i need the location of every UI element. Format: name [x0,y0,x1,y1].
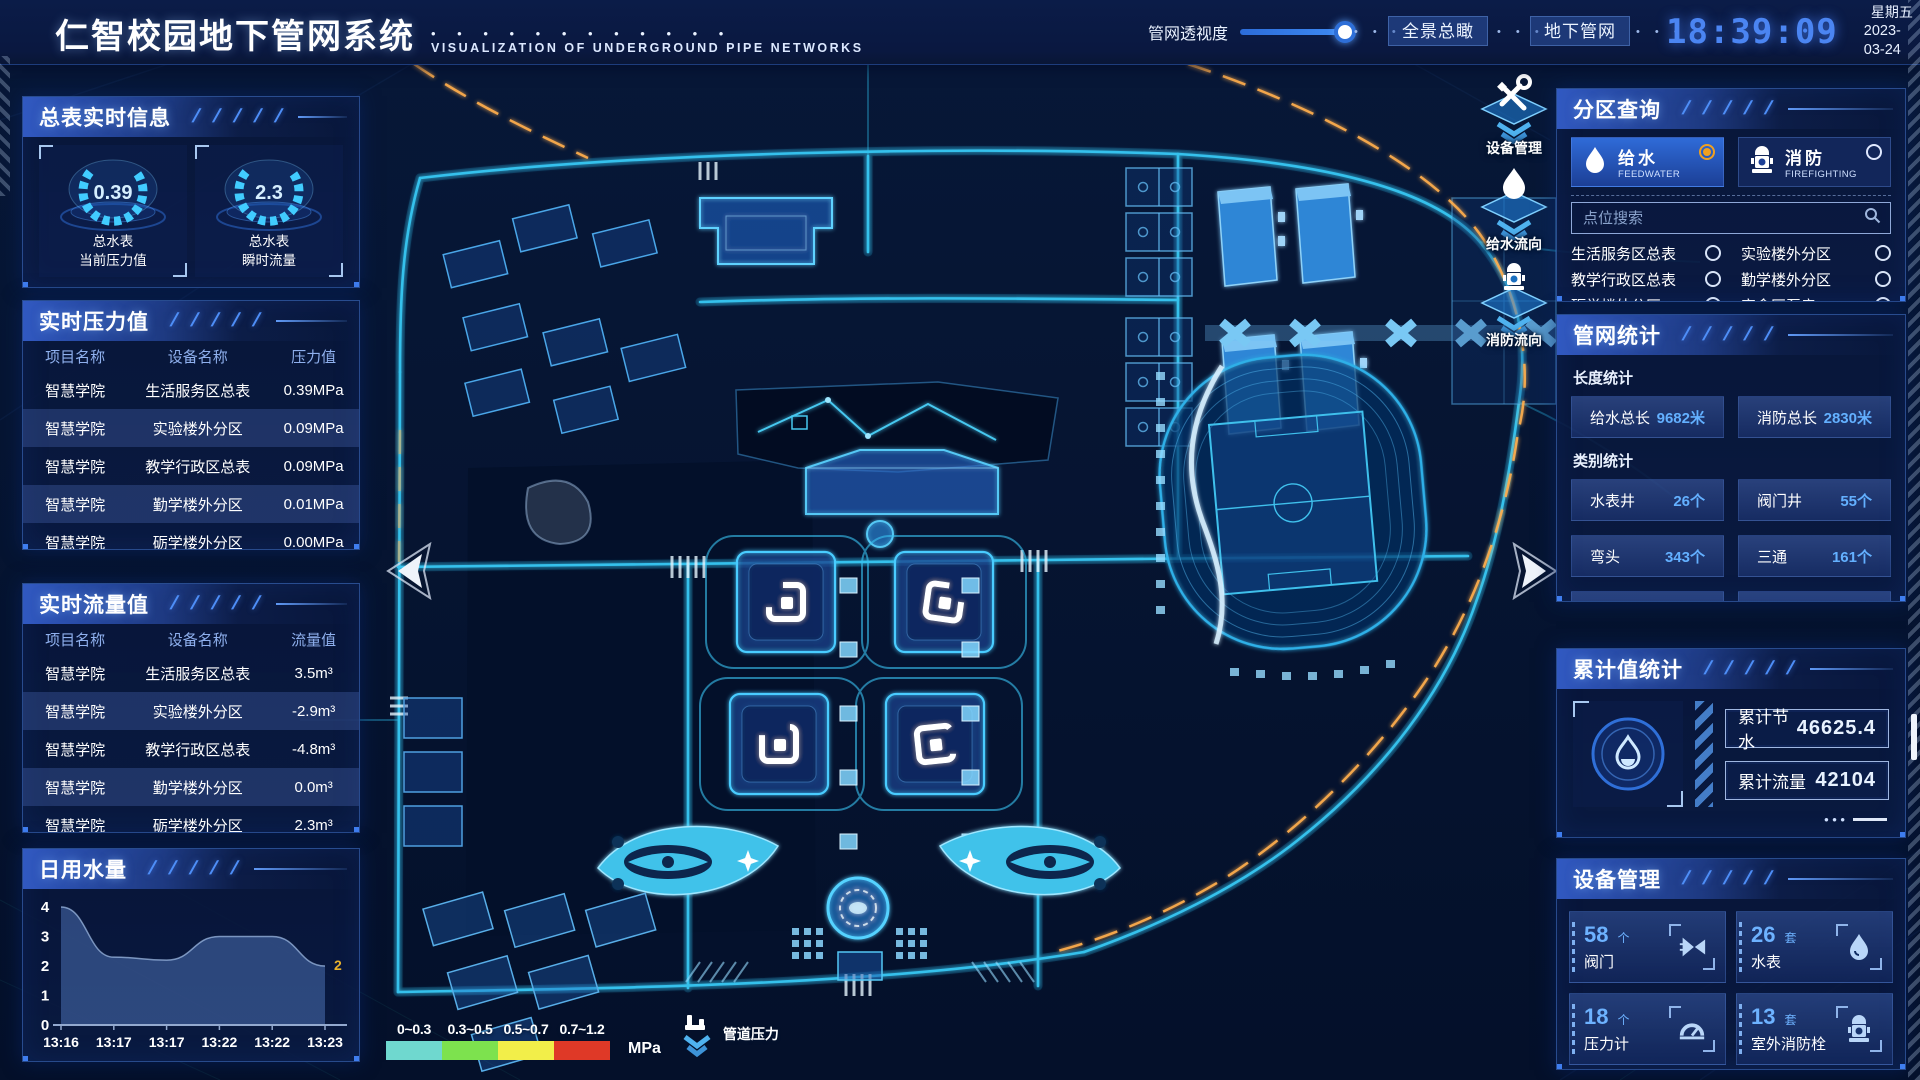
panel-title: 总表实时信息 [39,102,171,132]
table-row: 智慧学院生活服务区总表3.5m³ [23,654,359,692]
stat-box-clipped [1571,591,1724,602]
map-pan-left-arrow[interactable] [374,540,438,607]
gauge-label: 总水表 瞬时流量 [242,233,296,271]
svg-text:13:23: 13:23 [307,1034,343,1050]
title-dots-deco: • • • • • • • • • • • • [431,27,864,41]
table-header: 项目名称设备名称压力值 [23,341,359,371]
svg-text:2: 2 [334,957,342,973]
pressure-gauge-icon [1669,1006,1715,1052]
radio-indicator [1875,271,1891,287]
radio-indicator [1705,297,1721,302]
chevron-left-icon [374,540,438,602]
daily-water-area-chart: 0123413:1613:1713:1713:2213:2213:232 [27,893,351,1055]
valve-icon [1669,924,1715,970]
svg-text:3: 3 [41,929,49,946]
pipe-pressure-legend: 0~0.3 0.3~0.5 0.5~0.7 0.7~1.2 MPa 管道压力 [386,1011,779,1060]
header-slashes-deco: / / / / / [1681,98,1777,120]
slider-thumb[interactable] [1334,21,1356,43]
header-line-deco [276,603,347,605]
cumulative-row: 累计节水46625.4 [1725,709,1889,748]
header-slashes-deco: / / / / / [147,858,243,880]
app-title: 仁智校园地下管网系统 [55,9,415,58]
realtime-flow-panel: 实时流量值/ / / / / 项目名称设备名称流量值 智慧学院生活服务区总表3.… [22,583,360,833]
svg-text:13:22: 13:22 [254,1034,290,1050]
underground-pipe-button[interactable]: 地下管网 [1530,16,1630,46]
app-subtitle: VISUALIZATION OF UNDERGROUND PIPE NETWOR… [431,41,864,55]
stat-box-clipped [1738,591,1891,602]
daily-water-panel: 日用水量/ / / / / 0123413:1613:1713:1713:221… [22,848,360,1062]
zone-list-item[interactable]: 勤学楼外分区 [1741,266,1891,292]
svg-text:13:17: 13:17 [149,1034,185,1050]
header-slashes-deco: / / / / / [169,310,265,332]
pipe-statistics-panel: 管网统计/ / / / / 长度统计 给水总长9682米 消防总长2830米 类… [1556,314,1906,602]
stripes-divider-deco [1695,701,1713,807]
library-building [700,198,832,264]
header-line-deco [1788,334,1893,336]
water-drop-icon [1582,145,1608,180]
radio-indicator [1875,245,1891,261]
header-line-deco [276,320,347,322]
valve-device-card[interactable]: 58个 阀门 [1569,911,1726,983]
legend-swatch [386,1041,442,1060]
svg-text:1: 1 [41,988,49,1005]
wrench-tools-icon [1478,66,1550,144]
panel-footer-deco: • • • [1557,807,1905,827]
radio-indicator [1866,144,1882,160]
length-stats-subtitle: 长度统计 [1557,355,1905,396]
master-meter-panel: 总表实时信息 / / / / / 0.39 总水表 当前压力值 [22,96,360,288]
table-header: 项目名称设备名称流量值 [23,624,359,654]
search-input[interactable] [1581,209,1864,228]
svg-text:2.3: 2.3 [255,182,283,204]
gauge-dial-icon: 2.3 [209,145,329,237]
pipe-pressure-gauge-icon[interactable] [677,1011,717,1068]
table-row: 智慧学院砺学楼外分区0.00MPa [23,523,359,550]
device-management-map-button[interactable]: 设备管理 [1478,66,1550,158]
svg-text:13:17: 13:17 [96,1034,132,1050]
search-box [1571,202,1891,234]
west-blocks [404,698,462,846]
panel-title: 实时压力值 [39,306,149,336]
legend-swatch [498,1041,554,1060]
pipe-transparency-slider-group: 管网透视度 [1148,0,1352,64]
svg-text:13:16: 13:16 [43,1034,79,1050]
feedwater-mode-button[interactable]: 给水FEEDWATER [1571,137,1724,187]
legend-label: 管道压力 [723,1024,779,1044]
panel-title: 设备管理 [1573,864,1661,894]
water-drop-icon [1478,162,1550,240]
legend-swatch [442,1041,498,1060]
water-drop-circle-icon [1589,715,1667,793]
table-row: 智慧学院砺学楼外分区2.3m³ [23,806,359,833]
table-row: 智慧学院实验楼外分区0.09MPa [23,409,359,447]
legend-unit: MPa [628,1040,661,1058]
right-edge-stripes-deco [1908,0,1920,1080]
zone-list-item[interactable]: 宿舍区泵房 [1741,292,1891,302]
radio-indicator [1699,144,1715,160]
header-line-deco [254,868,347,870]
central-fountain [828,878,888,938]
header-line-deco [298,116,347,118]
svg-text:2: 2 [41,958,49,975]
stat-box: 三通161个 [1738,535,1891,577]
stat-box: 弯头343个 [1571,535,1724,577]
svg-text:0: 0 [41,1017,49,1034]
outdoor-hydrant-device-card[interactable]: 13套 室外消防栓 [1736,993,1893,1065]
table-row: 智慧学院勤学楼外分区0.0m³ [23,768,359,806]
pressure-gauge-device-card[interactable]: 18个 压力计 [1569,993,1726,1065]
stat-box: 水表井26个 [1571,479,1724,521]
flow-gauge-card: 2.3 总水表 瞬时流量 [195,145,343,277]
panel-title: 累计值统计 [1573,654,1683,684]
header-slashes-deco: / / / / / [1681,868,1777,890]
svg-text:13:22: 13:22 [201,1034,237,1050]
table-row: 智慧学院实验楼外分区-2.9m³ [23,692,359,730]
water-saving-icon-box [1573,701,1683,807]
realtime-pressure-panel: 实时压力值/ / / / / 项目名称设备名称压力值 智慧学院生活服务区总表0.… [22,300,360,550]
zone-list-item[interactable]: 实验楼外分区 [1741,240,1891,266]
map-tool-stack: 设备管理 给水流向 消防流向 [1462,66,1566,354]
header-slashes-deco: / / / / / [1703,658,1799,680]
clock-time: 18:39:09 [1666,12,1838,52]
header-line-deco [1788,108,1893,110]
dashed-separator [1571,195,1891,196]
zone-list: 生活服务区总表 实验楼外分区 教学行政区总表 勤学楼外分区 砺学楼外分区 宿舍区… [1571,240,1891,302]
feedwater-flow-map-button[interactable]: 给水流向 [1478,162,1550,254]
water-drop-icon [1836,924,1882,970]
transparency-slider[interactable] [1240,29,1352,35]
firefighting-flow-map-button[interactable]: 消防流向 [1478,258,1550,350]
panel-title: 日用水量 [39,854,127,884]
stat-box: 给水总长9682米 [1571,396,1724,438]
gauge-label: 总水表 当前压力值 [79,233,147,271]
radio-indicator [1875,297,1891,302]
table-row: 智慧学院勤学楼外分区0.01MPa [23,485,359,523]
legend-swatch [554,1041,610,1060]
fire-hydrant-icon [1478,258,1550,336]
radio-indicator [1705,245,1721,261]
zone-list-item[interactable]: 砺学楼外分区 [1571,292,1721,302]
stat-box: 阀门井55个 [1738,479,1891,521]
scrollbar-thumb[interactable] [1911,714,1917,760]
fire-hydrant-icon [1749,145,1775,180]
panel-title: 管网统计 [1573,320,1661,350]
svg-text:0.39: 0.39 [94,182,133,204]
clock-block: 18:39:09 星期五 2023-03-24 [1666,0,1920,64]
header-slashes-deco: / / / / / [1681,324,1777,346]
fire-hydrant-icon [1836,1006,1882,1052]
device-management-panel: 设备管理/ / / / / 58个 阀门 26套 水表 18个 压力计 13套 [1556,858,1906,1070]
slider-label: 管网透视度 [1148,20,1228,44]
zone-list-item[interactable]: 教学行政区总表 [1571,266,1721,292]
gauge-dial-icon: 0.39 [53,145,173,237]
table-row: 智慧学院生活服务区总表0.39MPa [23,371,359,409]
cumulative-stats-panel: 累计值统计/ / / / / 累计节水46625.4 累计流量42104 • •… [1556,648,1906,838]
water-meter-device-card[interactable]: 26套 水表 [1736,911,1893,983]
panorama-overview-button[interactable]: 全景总瞰 [1388,16,1488,46]
header-slashes-deco: / / / / / [169,593,265,615]
clock-weekday: 星期五 [1871,3,1913,22]
pressure-gauge-card: 0.39 总水表 当前压力值 [39,145,187,277]
header-line-deco [1788,878,1893,880]
title-block: 仁智校园地下管网系统 • • • • • • • • • • • • VISUA… [55,9,864,58]
panel-header: 总表实时信息 / / / / / [23,97,359,137]
table-row: 智慧学院教学行政区总表0.09MPa [23,447,359,485]
subtitle-column: • • • • • • • • • • • • VISUALIZATION OF… [431,27,864,58]
header-bar: 仁智校园地下管网系统 • • • • • • • • • • • • VISUA… [0,0,1920,65]
radio-indicator [1705,271,1721,287]
zone-query-panel: 分区查询/ / / / / 给水FEEDWATER 消防FIREFIGHTING… [1556,88,1906,302]
zone-list-item[interactable]: 生活服务区总表 [1571,240,1721,266]
left-edge-stripes-deco [0,56,10,196]
firefighting-mode-button[interactable]: 消防FIREFIGHTING [1738,137,1891,187]
header-line-deco [1810,668,1893,670]
cumulative-row: 累计流量42104 [1725,761,1889,800]
table-row: 智慧学院教学行政区总表-4.8m³ [23,730,359,768]
panel-title: 实时流量值 [39,589,149,619]
search-icon[interactable] [1864,207,1881,229]
panel-title: 分区查询 [1573,94,1661,124]
header-slashes-deco: / / / / / [191,106,287,128]
category-stats-subtitle: 类别统计 [1557,438,1905,479]
stat-box: 消防总长2830米 [1738,396,1891,438]
svg-text:4: 4 [41,899,50,916]
